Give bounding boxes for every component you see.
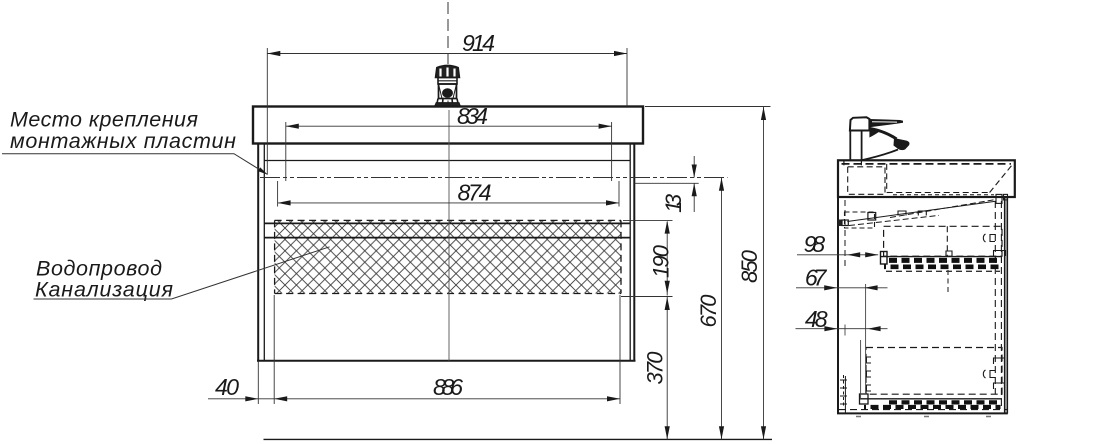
svg-text:370: 370	[642, 351, 667, 385]
svg-text:Место крепления: Место крепления	[10, 108, 199, 132]
svg-text:914: 914	[462, 30, 495, 56]
svg-text:190: 190	[648, 244, 673, 278]
svg-text:13: 13	[661, 193, 686, 213]
svg-text:670: 670	[696, 294, 721, 328]
svg-text:98: 98	[804, 231, 826, 257]
svg-text:40: 40	[215, 374, 239, 400]
svg-text:48: 48	[805, 306, 828, 332]
svg-text:67: 67	[805, 264, 828, 290]
svg-text:монтажных пластин: монтажных пластин	[10, 129, 236, 153]
svg-text:834: 834	[457, 103, 488, 129]
svg-text:886: 886	[433, 374, 463, 400]
svg-text:850: 850	[737, 249, 762, 283]
svg-text:874: 874	[458, 180, 492, 206]
svg-text:Канализация: Канализация	[35, 278, 174, 302]
